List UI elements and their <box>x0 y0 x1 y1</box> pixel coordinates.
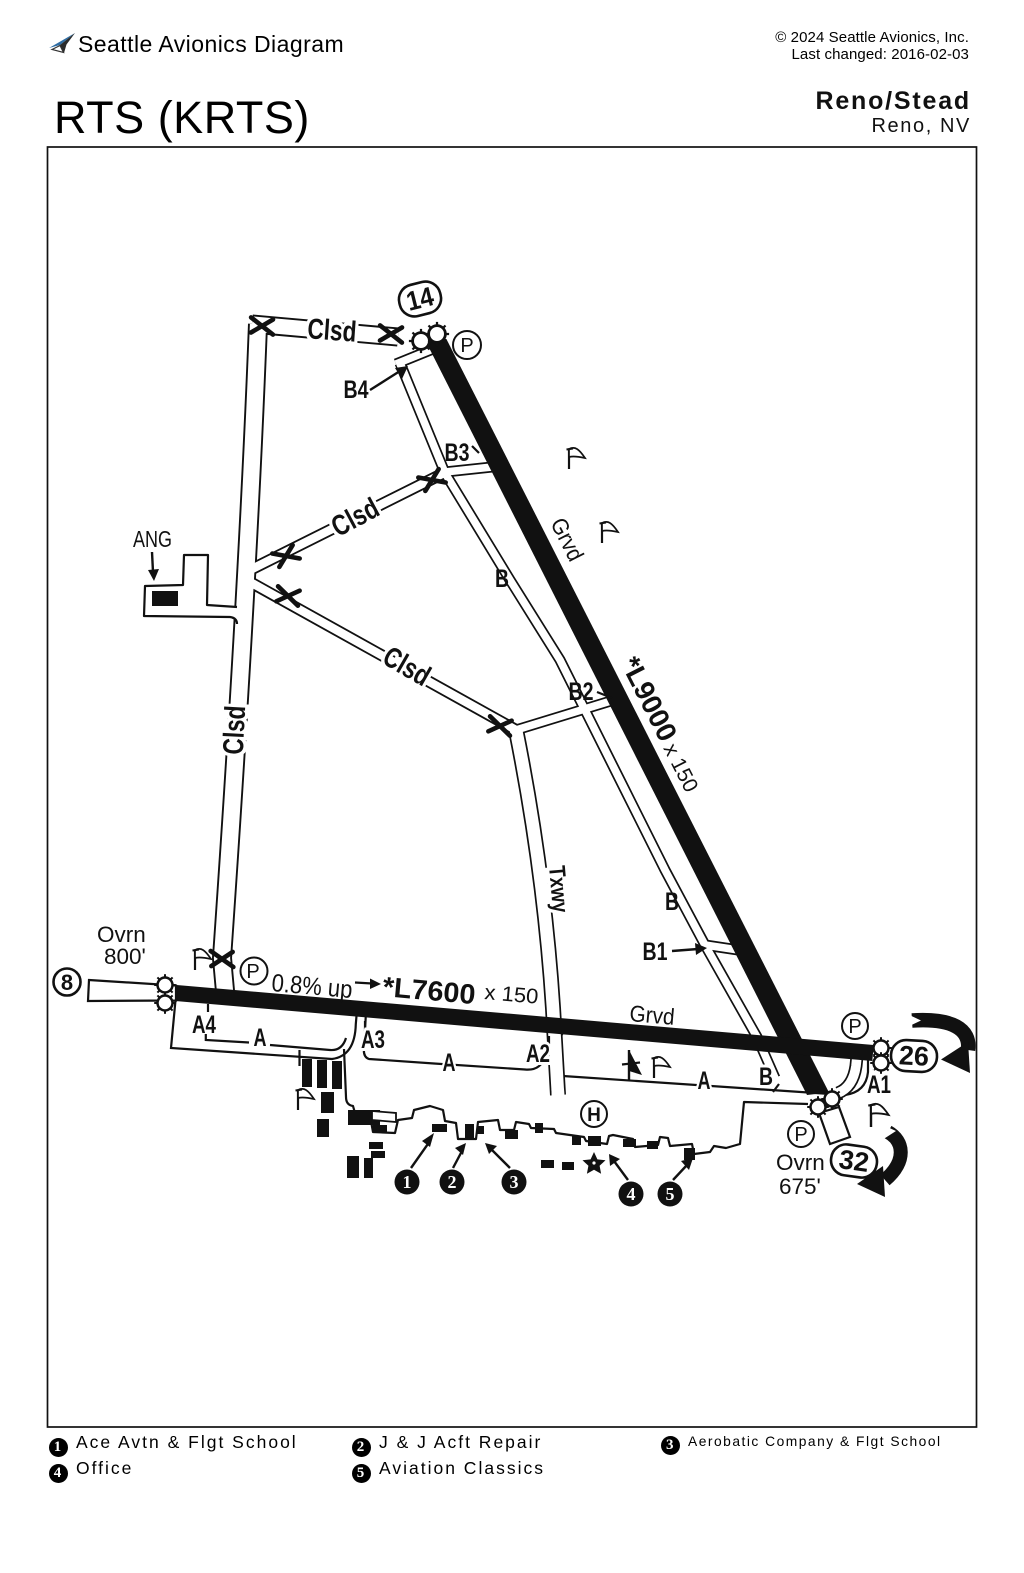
svg-text:B: B <box>665 888 679 916</box>
svg-text:B3: B3 <box>445 439 470 467</box>
svg-text:B: B <box>759 1063 773 1091</box>
svg-text:32: 32 <box>837 1144 871 1178</box>
svg-text:A4: A4 <box>192 1011 216 1039</box>
svg-text:ANG: ANG <box>133 526 172 552</box>
svg-text:A: A <box>254 1024 267 1052</box>
svg-text:A3: A3 <box>361 1026 385 1054</box>
svg-text:Ovrn: Ovrn <box>776 1150 825 1175</box>
svg-text:800': 800' <box>104 944 146 969</box>
svg-text:Clsd: Clsd <box>326 492 384 543</box>
svg-text:P: P <box>460 335 473 357</box>
svg-text:675': 675' <box>779 1174 821 1199</box>
svg-text:A1: A1 <box>867 1071 891 1099</box>
svg-text:B1: B1 <box>643 938 668 966</box>
svg-text:P: P <box>246 961 259 983</box>
svg-text:x 150: x 150 <box>484 981 540 1009</box>
svg-text:4: 4 <box>627 1184 636 1204</box>
svg-text:P: P <box>848 1016 861 1038</box>
svg-text:B2: B2 <box>569 678 594 706</box>
svg-text:5: 5 <box>666 1184 675 1204</box>
svg-text:A: A <box>698 1067 711 1095</box>
svg-text:B4: B4 <box>344 376 369 404</box>
svg-text:B: B <box>495 565 509 593</box>
svg-text:P: P <box>794 1124 807 1146</box>
svg-text:A2: A2 <box>526 1040 550 1068</box>
svg-text:Clsd: Clsd <box>306 313 357 348</box>
svg-text:1: 1 <box>403 1172 412 1192</box>
svg-text:Grvd: Grvd <box>629 1000 676 1030</box>
svg-text:3: 3 <box>510 1172 519 1192</box>
svg-text:26: 26 <box>898 1040 930 1072</box>
svg-text:A: A <box>443 1049 456 1077</box>
svg-text:8: 8 <box>61 970 73 995</box>
svg-text:H: H <box>587 1105 601 1126</box>
svg-text:Txwy: Txwy <box>544 865 574 914</box>
svg-text:2: 2 <box>448 1172 457 1192</box>
svg-text:Clsd: Clsd <box>218 705 253 756</box>
